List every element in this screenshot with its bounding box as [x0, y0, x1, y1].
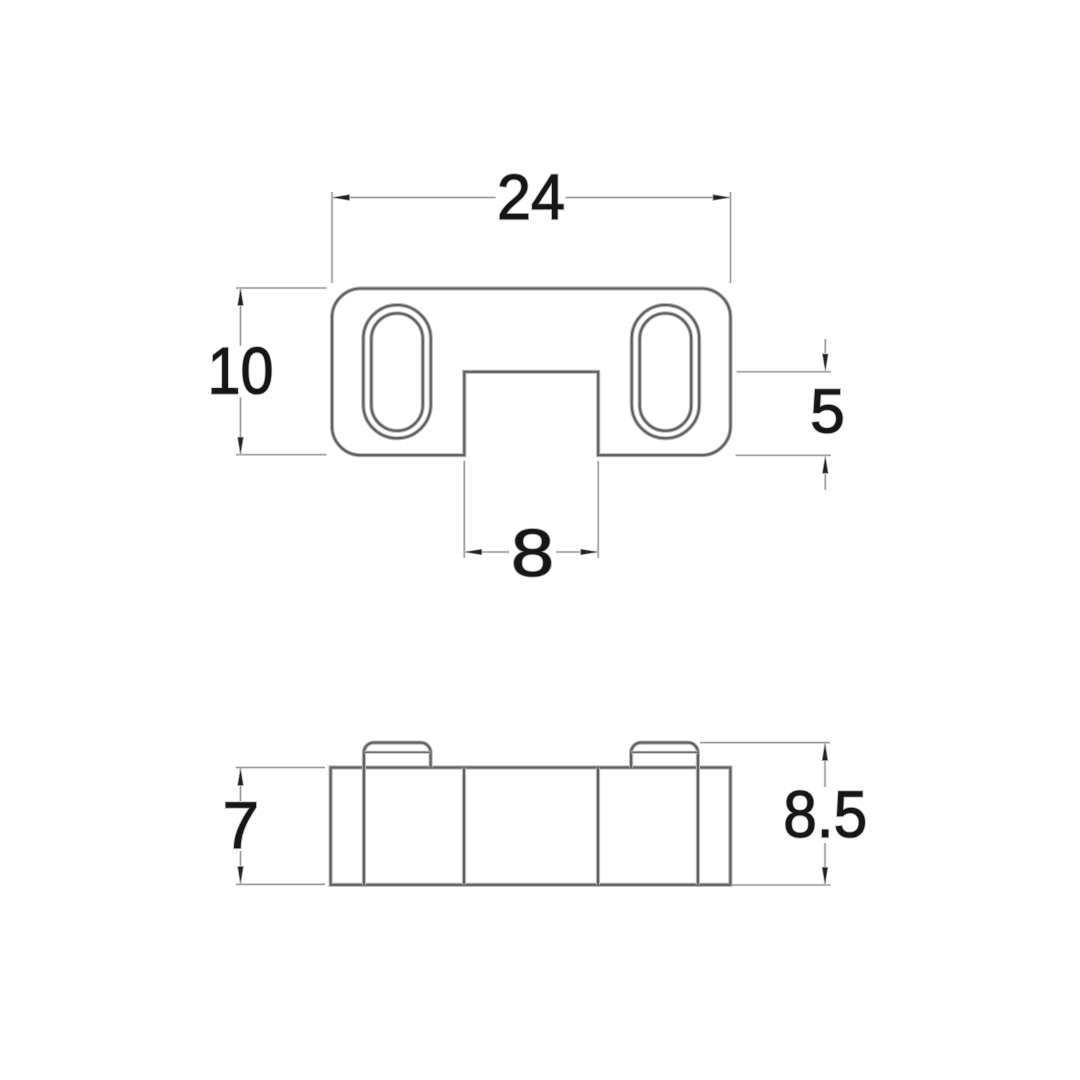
- svg-text:10: 10: [208, 335, 274, 408]
- svg-text:8: 8: [511, 516, 554, 591]
- svg-text:5: 5: [810, 377, 845, 447]
- svg-text:8.5: 8.5: [783, 778, 867, 851]
- svg-text:24: 24: [497, 161, 565, 233]
- svg-text:7: 7: [223, 789, 259, 862]
